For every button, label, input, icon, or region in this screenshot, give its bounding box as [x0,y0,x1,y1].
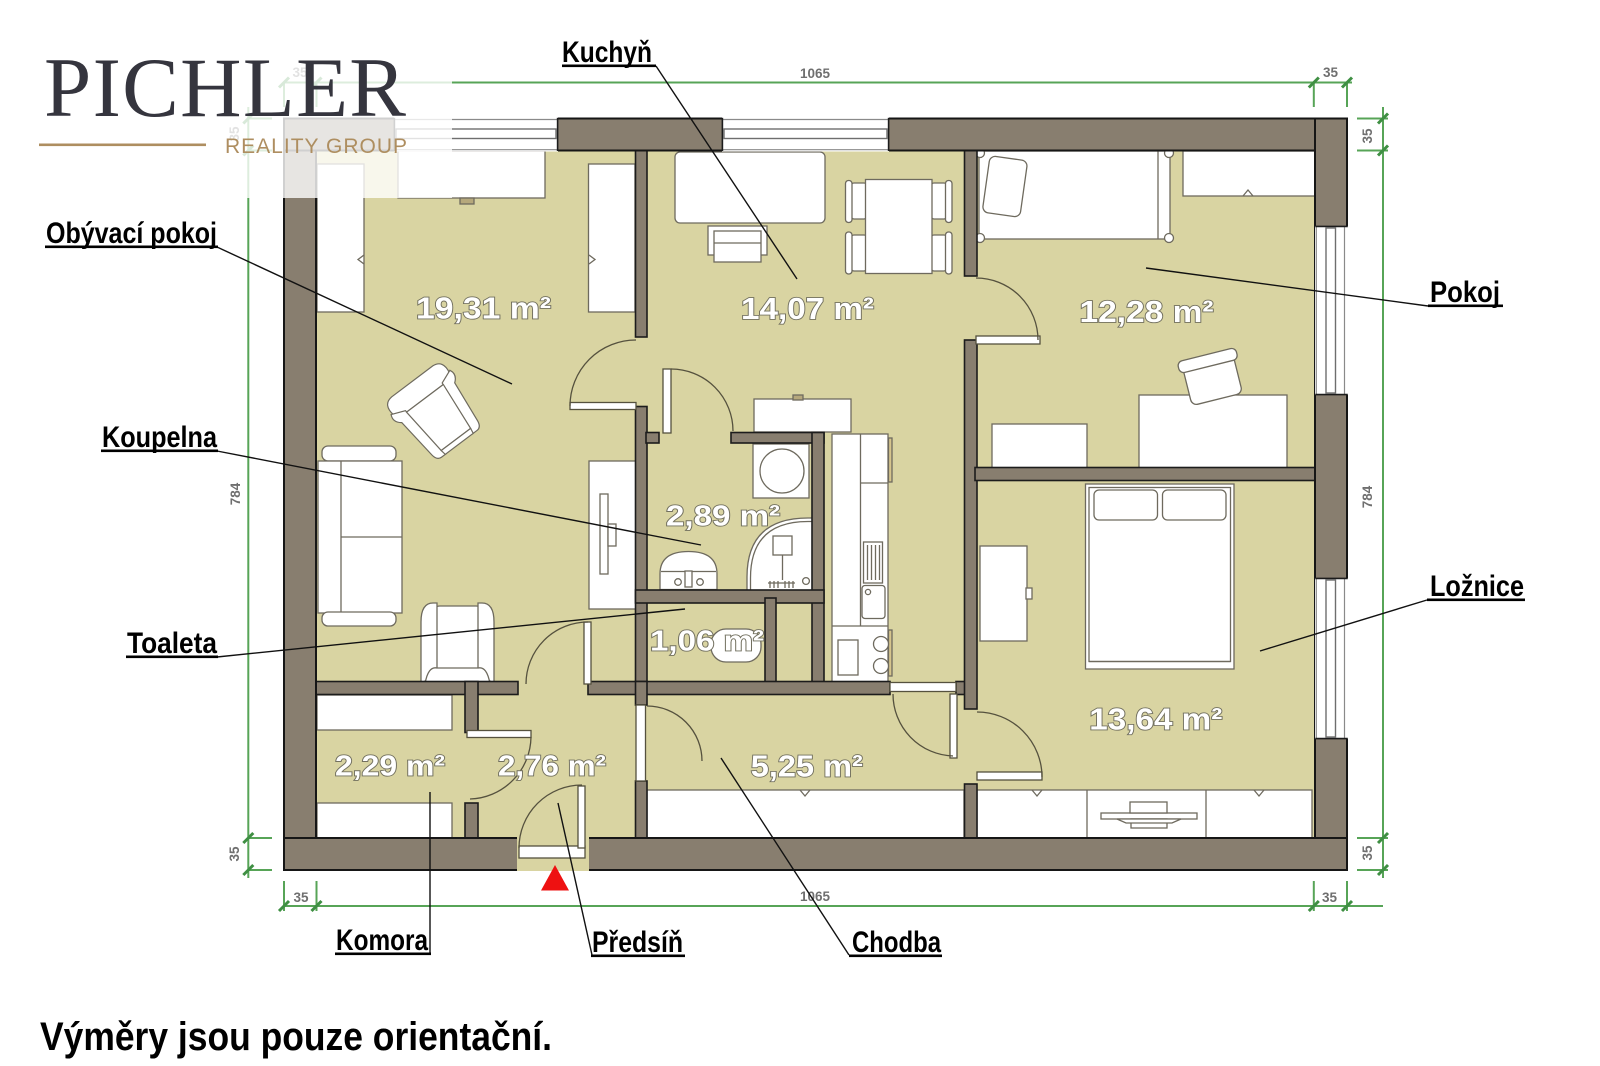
svg-text:Chodba: Chodba [852,926,941,959]
svg-text:1065: 1065 [800,889,831,904]
svg-text:35: 35 [1360,845,1375,861]
svg-text:19,31 m²: 19,31 m² [416,291,551,326]
svg-text:1,06 m²: 1,06 m² [650,626,764,658]
svg-text:1065: 1065 [800,66,831,81]
svg-text:Koupelna: Koupelna [102,421,217,454]
svg-text:35: 35 [1322,890,1338,905]
svg-text:Komora: Komora [336,924,428,957]
svg-text:35: 35 [1360,128,1375,144]
svg-text:2,29 m²: 2,29 m² [335,751,445,783]
svg-text:14,07 m²: 14,07 m² [741,291,874,326]
svg-text:784: 784 [1360,485,1375,508]
svg-text:REALITY GROUP: REALITY GROUP [225,135,412,158]
svg-text:Kuchyň: Kuchyň [562,36,652,69]
svg-text:Obývací pokoj: Obývací pokoj [46,217,217,250]
svg-text:13,64 m²: 13,64 m² [1089,702,1222,737]
svg-text:35: 35 [293,890,309,905]
svg-text:Ložnice: Ložnice [1430,570,1524,603]
svg-text:35: 35 [1323,65,1339,80]
svg-text:5,25 m²: 5,25 m² [751,749,863,784]
svg-text:2,76 m²: 2,76 m² [498,751,606,783]
svg-text:35: 35 [227,846,242,862]
svg-text:12,28 m²: 12,28 m² [1080,294,1214,329]
svg-text:784: 784 [228,482,243,505]
svg-text:Pokoj: Pokoj [1430,276,1500,309]
svg-text:Předsíň: Předsíň [592,926,683,959]
svg-text:PICHLER: PICHLER [44,41,412,135]
svg-text:2,89 m²: 2,89 m² [666,501,780,533]
svg-text:Toaleta: Toaleta [127,627,217,660]
svg-text:Výměry jsou pouze orientační.: Výměry jsou pouze orientační. [40,1015,552,1059]
